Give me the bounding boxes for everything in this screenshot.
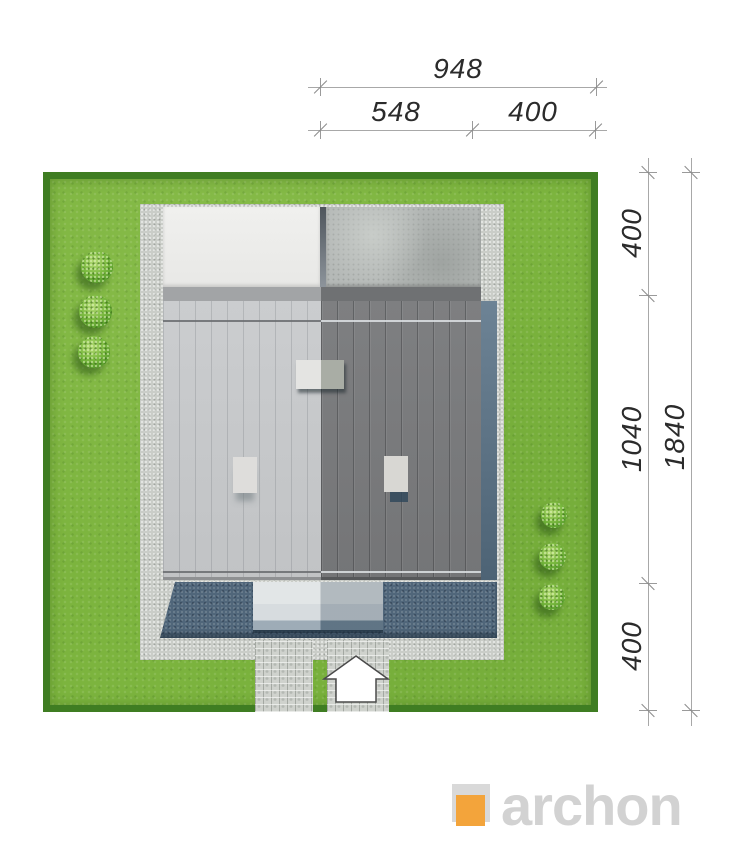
roof-side-shadow (481, 301, 497, 580)
dim-label-top-left: 548 (371, 96, 421, 128)
dim-label-right-bottom: 400 (616, 621, 648, 671)
dim-label-right-middle: 1040 (616, 406, 648, 472)
eave-edge (163, 577, 481, 580)
snow-guard-line (163, 571, 481, 573)
dim-label-top-overall: 948 (433, 53, 483, 85)
terrace-left (163, 207, 320, 287)
roof-left-light (163, 301, 321, 580)
bush-icon (78, 336, 110, 368)
roof-right-dark (321, 301, 481, 580)
bush-icon (539, 543, 566, 570)
terrace-right-concrete (326, 207, 481, 287)
roof-window-left (233, 457, 257, 493)
dim-label-right-overall: 1840 (659, 404, 691, 470)
logo-square-orange (456, 795, 485, 826)
site-plan-canvas: 948 548 400 400 1040 400 1840 archon (0, 0, 734, 854)
logo-text: archon (501, 778, 682, 834)
porch-slab (253, 582, 383, 630)
bush-icon (539, 584, 565, 610)
dim-line-right-segments (648, 158, 649, 726)
roof-window-right (384, 456, 408, 492)
dim-line-right-overall (691, 158, 692, 726)
dim-label-top-right: 400 (508, 96, 558, 128)
logo-mark-icon (450, 780, 492, 830)
chimney (296, 360, 344, 389)
dim-line-top-overall (308, 87, 607, 88)
path-driveway (255, 640, 313, 712)
dim-label-right-top: 400 (616, 208, 648, 258)
archon-logo: archon (450, 780, 682, 830)
bush-icon (81, 251, 113, 283)
bush-icon (79, 295, 112, 328)
roof-ridge-band (163, 287, 481, 301)
snow-guard-line (163, 320, 481, 322)
dim-line-top-segments (308, 130, 607, 131)
entrance-arrow-icon (322, 654, 390, 704)
bush-icon (541, 502, 567, 528)
